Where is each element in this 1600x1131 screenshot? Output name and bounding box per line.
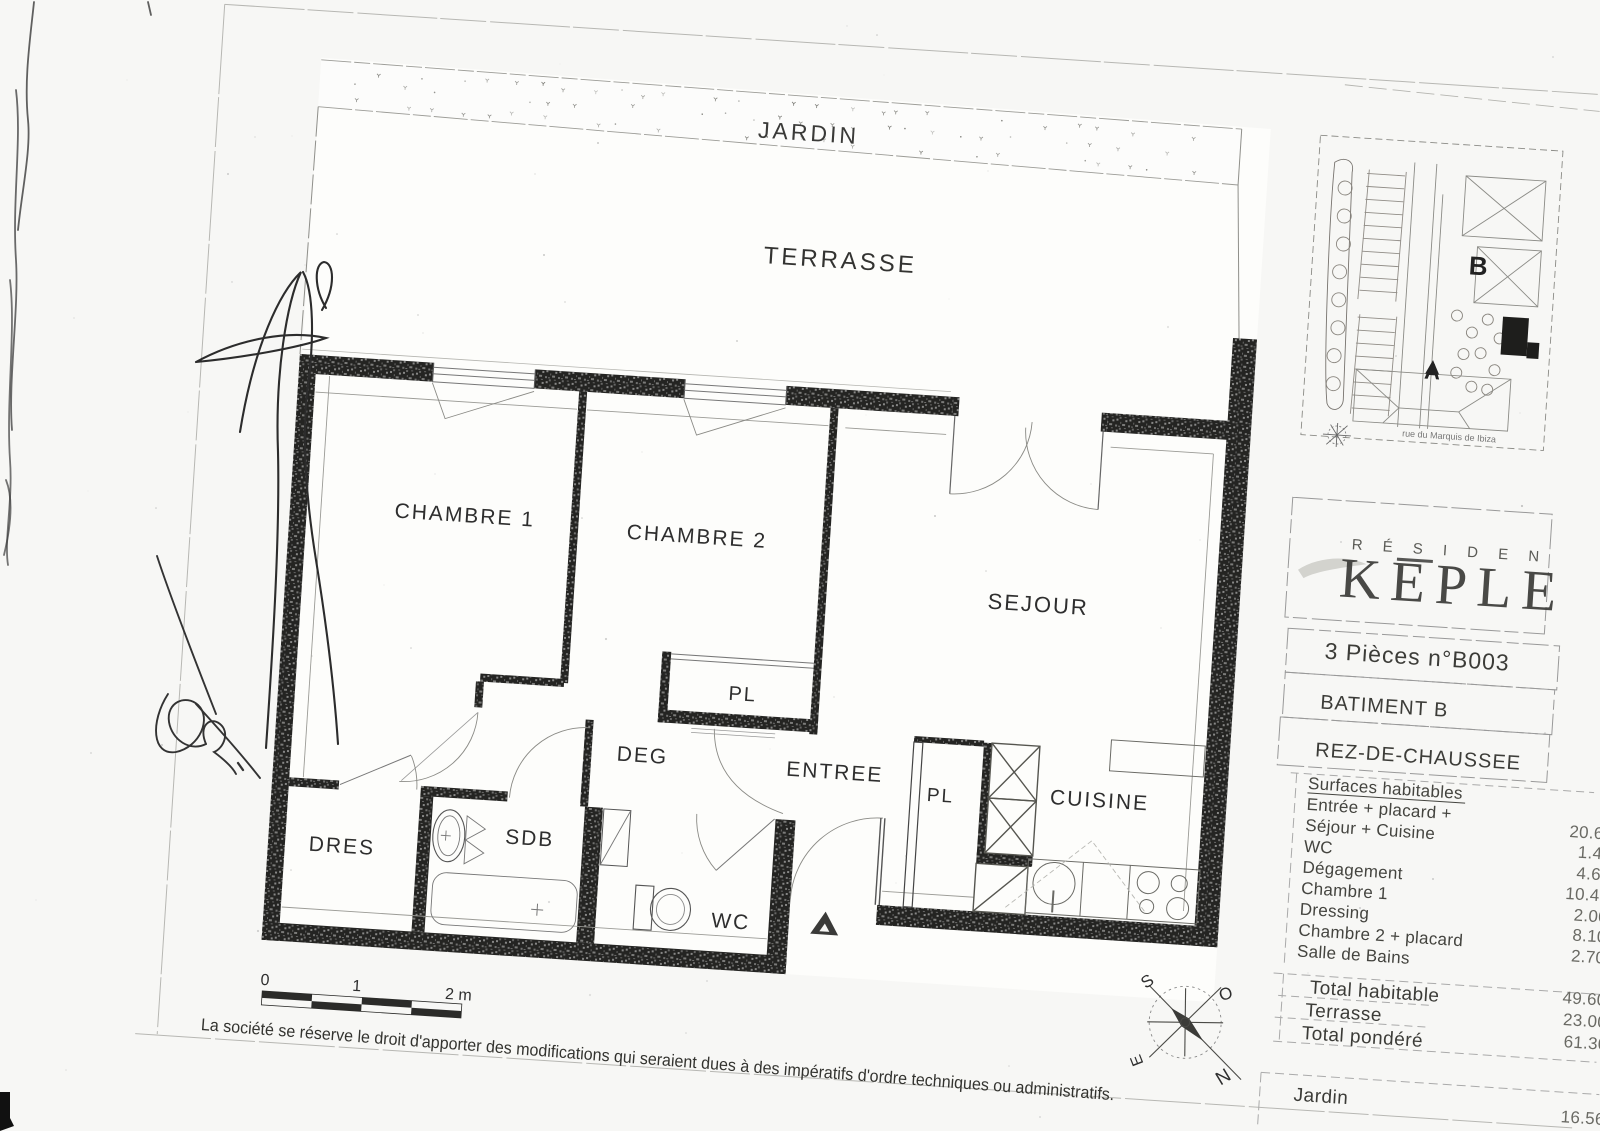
svg-text:2.70: 2.70 — [1570, 946, 1600, 967]
svg-text:61.30: 61.30 — [1563, 1032, 1600, 1054]
svg-text:SDB: SDB — [505, 825, 556, 851]
svg-text:1: 1 — [352, 978, 362, 996]
svg-text:PL: PL — [926, 785, 955, 808]
svg-text:10.40: 10.40 — [1565, 884, 1600, 906]
svg-text:49.60: 49.60 — [1562, 988, 1600, 1010]
svg-text:0: 0 — [260, 972, 270, 990]
svg-text:B: B — [1468, 250, 1489, 281]
svg-text:2 m: 2 m — [445, 986, 473, 1005]
svg-text:WC: WC — [1303, 837, 1333, 858]
svg-text:2.00: 2.00 — [1573, 906, 1600, 927]
svg-text:1.40: 1.40 — [1577, 843, 1600, 864]
svg-text:PL: PL — [728, 683, 758, 707]
svg-text:20.60: 20.60 — [1569, 822, 1600, 844]
svg-text:4.60: 4.60 — [1576, 864, 1600, 885]
svg-text:16.56: 16.56 — [1560, 1107, 1600, 1129]
svg-text:DEG: DEG — [616, 743, 669, 769]
svg-text:Jardin: Jardin — [1293, 1085, 1349, 1110]
svg-text:23.00: 23.00 — [1563, 1010, 1600, 1032]
svg-text:DRES: DRES — [308, 833, 376, 860]
svg-text:WC: WC — [711, 909, 751, 935]
svg-text:8.10: 8.10 — [1572, 925, 1600, 946]
